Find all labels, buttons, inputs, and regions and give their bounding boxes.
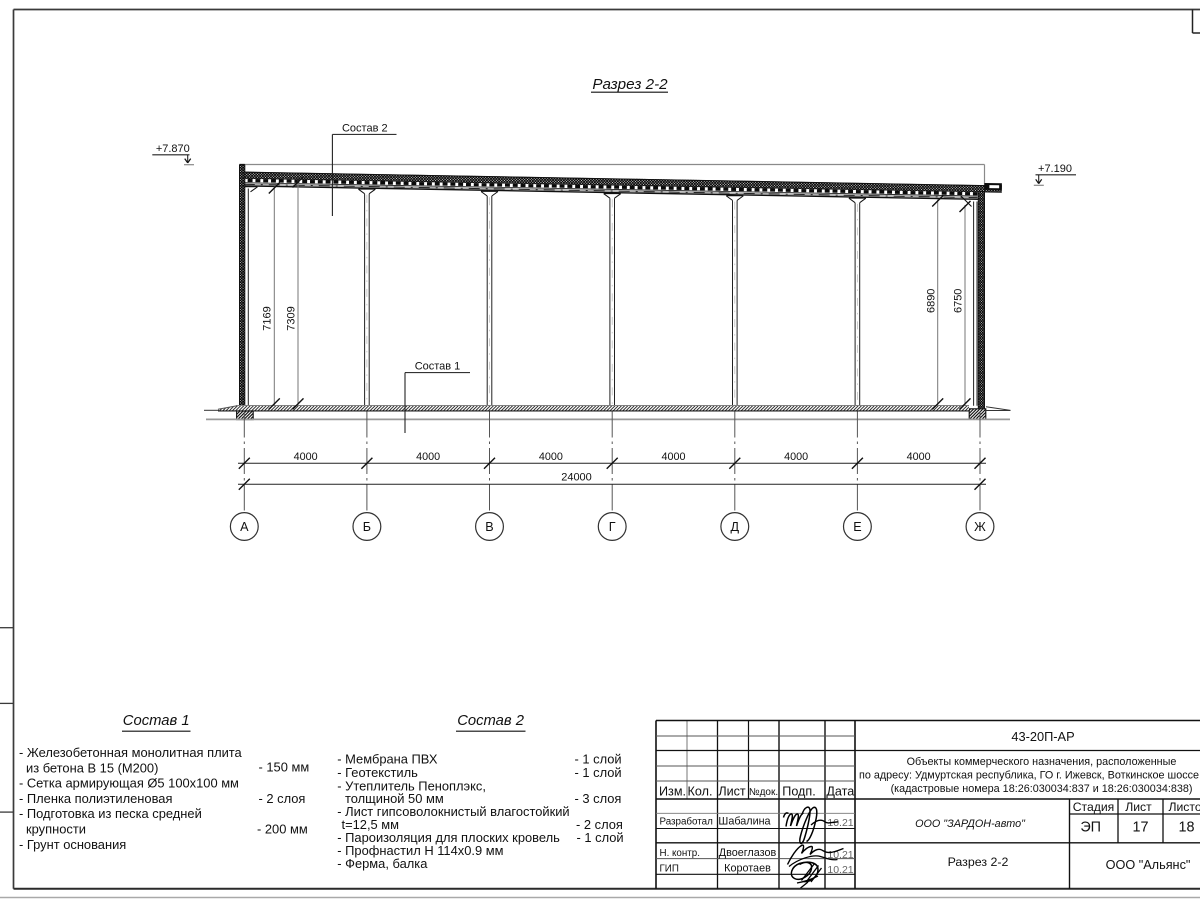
svg-text:4000: 4000 xyxy=(294,451,318,463)
svg-text:Стадия: Стадия xyxy=(1073,800,1115,814)
svg-text:- Ферма, балка: - Ферма, балка xyxy=(337,856,428,871)
svg-text:по адресу: Удмуртская республи: по адресу: Удмуртская республика, ГО г. … xyxy=(859,769,1200,781)
svg-text:4000: 4000 xyxy=(416,451,440,463)
svg-text:Состав 2: Состав 2 xyxy=(342,123,388,135)
svg-text:Объекты коммерческого назначен: Объекты коммерческого назначения, распол… xyxy=(907,756,1177,768)
svg-text:Н. контр.: Н. контр. xyxy=(660,848,700,859)
svg-text:Разработал: Разработал xyxy=(660,817,714,828)
svg-text:Д: Д xyxy=(731,520,740,534)
svg-text:4000: 4000 xyxy=(661,451,685,463)
svg-text:7309: 7309 xyxy=(285,306,297,330)
svg-text:Листов: Листов xyxy=(1169,800,1200,814)
svg-text:ГИП: ГИП xyxy=(660,863,679,874)
svg-text:- 150 мм: - 150 мм xyxy=(259,759,310,774)
svg-text:17: 17 xyxy=(1132,820,1148,836)
svg-text:+7.190: +7.190 xyxy=(1038,163,1072,175)
svg-text:- 1 слой: - 1 слой xyxy=(575,765,622,780)
svg-text:- Пленка полиэтиленовая: - Пленка полиэтиленовая xyxy=(19,791,172,806)
svg-text:Подп.: Подп. xyxy=(782,784,815,798)
svg-text:18: 18 xyxy=(1178,820,1194,836)
svg-text:7169: 7169 xyxy=(261,306,273,330)
svg-text:- Железобетонная монолитная п: - Железобетонная монолитная плита xyxy=(19,745,243,760)
svg-text:Дата: Дата xyxy=(826,784,854,798)
svg-text:Лист: Лист xyxy=(1125,800,1152,814)
svg-text:ЭП: ЭП xyxy=(1080,820,1101,836)
svg-text:Ж: Ж xyxy=(974,520,986,534)
svg-text:Двоеглазов: Двоеглазов xyxy=(719,847,777,859)
svg-text:10.21: 10.21 xyxy=(827,864,853,876)
svg-text:Коротаев: Коротаев xyxy=(724,862,771,874)
svg-text:- 1 слой: - 1 слой xyxy=(577,830,624,845)
svg-text:из бетона В 15 (М200): из бетона В 15 (М200) xyxy=(26,760,158,775)
svg-text:- 2 слоя: - 2 слоя xyxy=(259,791,306,806)
svg-text:Б: Б xyxy=(363,520,371,534)
svg-text:Разрез 2-2: Разрез 2-2 xyxy=(948,855,1009,869)
svg-text:6890: 6890 xyxy=(925,289,937,313)
svg-text:Изм.: Изм. xyxy=(659,784,686,798)
svg-text:Е: Е xyxy=(853,520,861,534)
svg-text:43-20П-АР: 43-20П-АР xyxy=(1011,729,1074,744)
svg-text:Состав 2: Состав 2 xyxy=(457,713,525,729)
svg-text:В: В xyxy=(485,520,493,534)
svg-text:крупности: крупности xyxy=(26,822,86,837)
svg-text:№док.: №док. xyxy=(749,787,778,798)
svg-text:Разрез 2-2: Разрез 2-2 xyxy=(592,76,668,93)
svg-text:- 200 мм: - 200 мм xyxy=(257,822,308,837)
svg-text:Лист: Лист xyxy=(718,784,746,798)
svg-text:А: А xyxy=(240,520,249,534)
svg-text:Кол.: Кол. xyxy=(688,784,713,798)
svg-text:24000: 24000 xyxy=(561,472,592,484)
svg-text:ООО "ЗАРДОН-авто": ООО "ЗАРДОН-авто" xyxy=(915,818,1026,830)
svg-text:6750: 6750 xyxy=(952,289,964,313)
svg-text:4000: 4000 xyxy=(907,451,931,463)
svg-text:- Сетка армирующая Ø5 100x100: - Сетка армирующая Ø5 100x100 мм xyxy=(19,776,239,791)
svg-text:4000: 4000 xyxy=(784,451,808,463)
svg-text:Г: Г xyxy=(609,520,616,534)
svg-text:Состав 1: Состав 1 xyxy=(415,361,461,373)
svg-text:ООО "Альянс": ООО "Альянс" xyxy=(1106,858,1191,872)
svg-text:- Грунт основания: - Грунт основания xyxy=(19,837,126,852)
svg-text:Шабалина: Шабалина xyxy=(718,816,770,828)
svg-text:- Подготовка из песка средней: - Подготовка из песка средней xyxy=(19,806,202,821)
svg-text:Состав 1: Состав 1 xyxy=(123,713,190,729)
svg-text:(кадастровые номера 18:26:0300: (кадастровые номера 18:26:030034:837 и 1… xyxy=(891,783,1193,795)
svg-text:+7.870: +7.870 xyxy=(156,143,190,155)
svg-text:- 3 слоя: - 3 слоя xyxy=(575,791,622,806)
svg-text:4000: 4000 xyxy=(539,451,563,463)
